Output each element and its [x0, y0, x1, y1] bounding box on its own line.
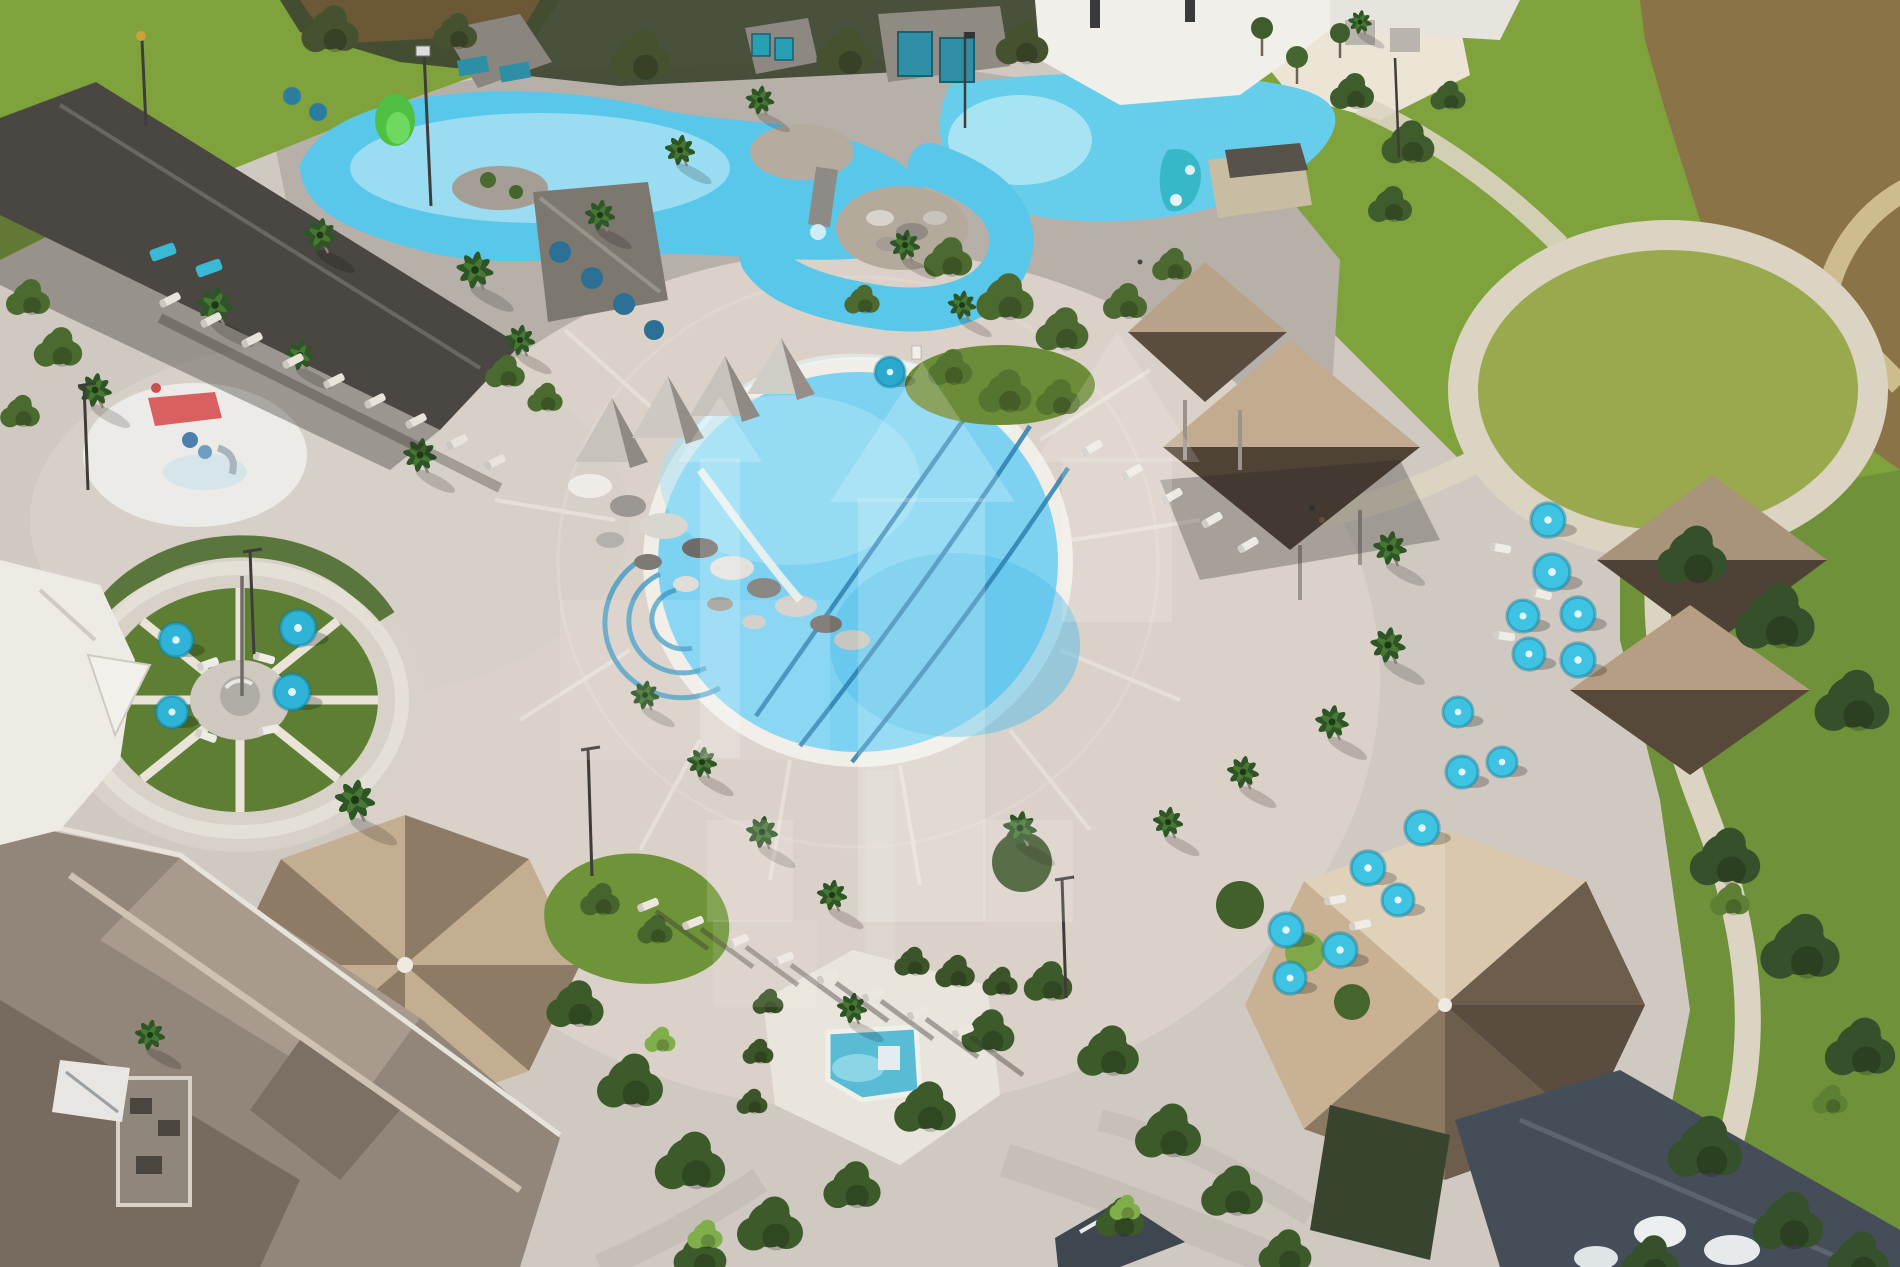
waterfall-splash — [810, 224, 826, 240]
watermark-block-c — [713, 920, 817, 1007]
watermark-block-low — [560, 600, 830, 760]
play-structure — [182, 432, 198, 448]
chimney — [118, 1078, 190, 1205]
aerial-photo — [0, 0, 1900, 1267]
trash-can — [912, 346, 921, 359]
pole-board — [416, 46, 430, 56]
spa-shallow — [832, 1054, 884, 1082]
hot-tub — [1704, 1235, 1760, 1265]
watermark-block-a — [707, 820, 793, 922]
spa-step — [878, 1046, 900, 1070]
red-play-top — [151, 383, 161, 393]
flag — [965, 32, 975, 38]
river-rock-pile — [750, 124, 854, 180]
lagoon-plant — [509, 185, 523, 199]
aerial-photo-canvas — [0, 0, 1900, 1267]
hex-apex — [397, 957, 413, 973]
watermark-bar-right — [1062, 458, 1172, 622]
play-structure — [198, 445, 212, 459]
lagoon-rock-outcrop — [452, 166, 548, 210]
lagoon-plant — [480, 172, 496, 188]
watermark-block-b — [983, 820, 1073, 922]
facet-apex — [1438, 998, 1452, 1012]
gold-finial — [136, 31, 146, 41]
green-slide — [375, 94, 415, 146]
watermark-bar-center — [858, 498, 985, 922]
